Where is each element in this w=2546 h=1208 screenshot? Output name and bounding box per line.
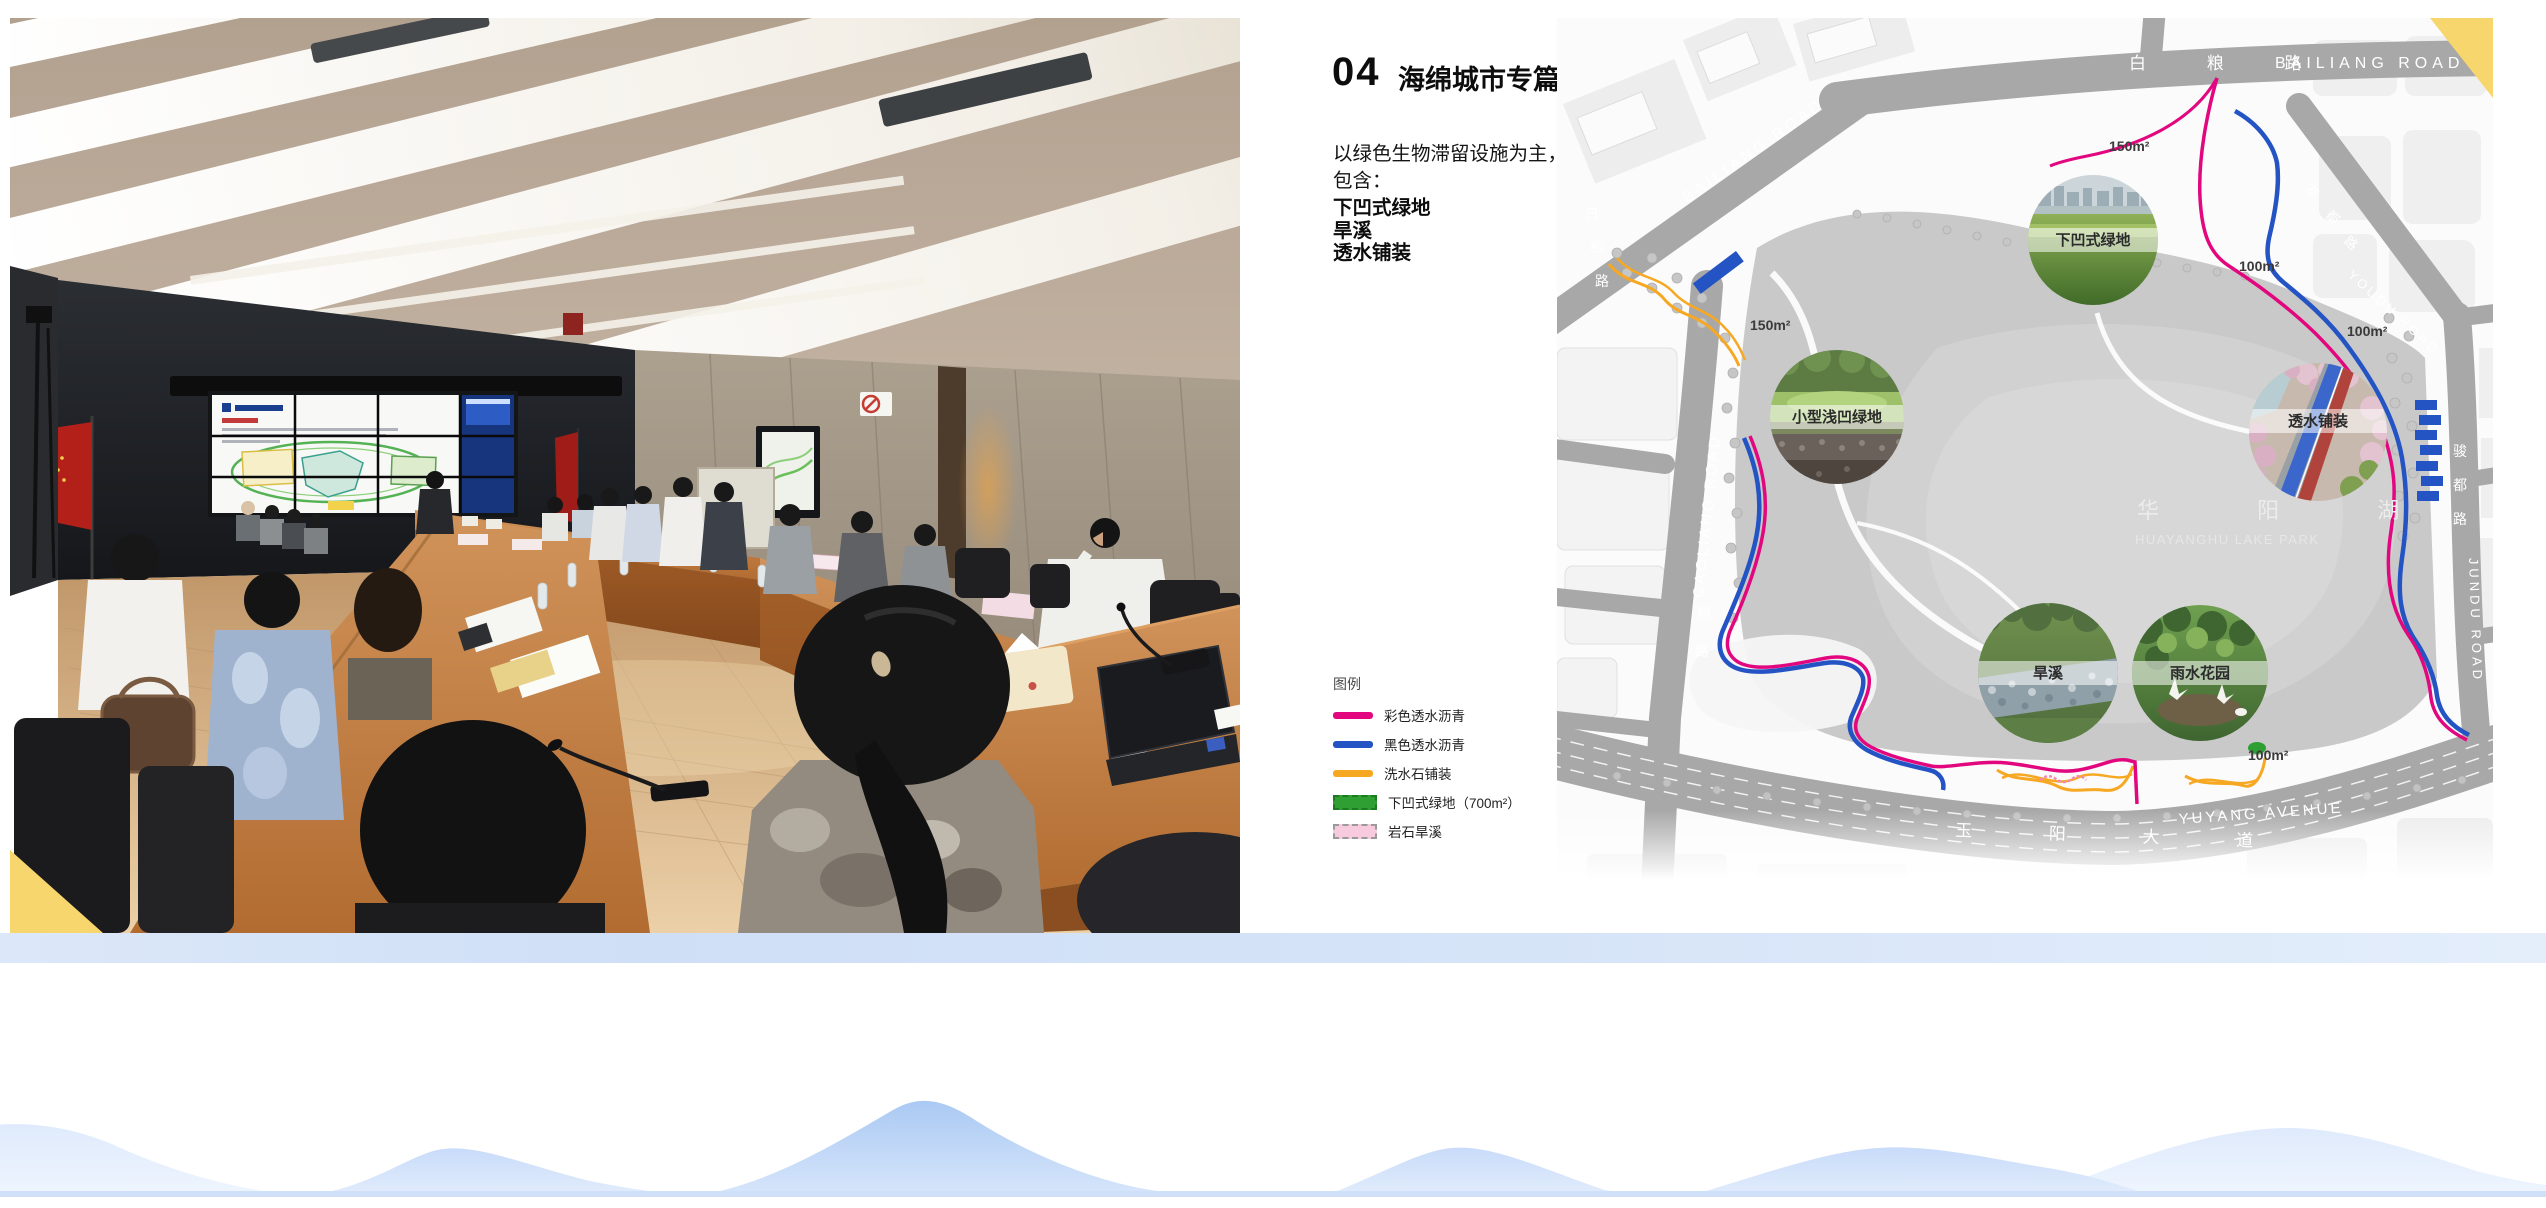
slide-page: 04 海绵城市专篇 以绿色生物滞留设施为主， 包含： 下凹式绿地 旱溪 透水铺装… (0, 0, 2546, 1208)
camera-tripod (26, 306, 52, 323)
svg-text:150m²: 150m² (1750, 317, 1791, 333)
feature-item: 透水铺装 (1333, 242, 1431, 265)
legend-row: 洗水石铺装 (1333, 763, 1521, 783)
svg-text:下凹式绿地: 下凹式绿地 (2055, 231, 2130, 249)
svg-text:都: 都 (2453, 477, 2467, 493)
feature-item: 旱溪 (1333, 220, 1431, 243)
site-plan-map: 下凹式绿地 小型浅凹绿地 (1557, 18, 2493, 880)
name-card (458, 534, 488, 545)
svg-text:透水铺装: 透水铺装 (2288, 412, 2349, 430)
svg-text:雨水花园: 雨水花园 (2170, 664, 2230, 682)
wall-sign (563, 313, 583, 335)
intro-line2: 包含： (1333, 168, 1573, 195)
legend-swatch-rock-creek (1333, 824, 1377, 839)
feature-list: 下凹式绿地 旱溪 透水铺装 (1333, 197, 1431, 265)
svg-text:100m²: 100m² (2248, 747, 2289, 763)
intro-line1: 以绿色生物滞留设施为主， (1333, 141, 1573, 168)
inset-sunken-green: 下凹式绿地 (2028, 175, 2158, 306)
svg-text:粮: 粮 (1697, 605, 1711, 621)
svg-text:路: 路 (1595, 273, 1609, 289)
section-number: 04 (1332, 50, 1381, 95)
svg-text:HUAYANGHU LAKE PARK: HUAYANGHU LAKE PARK (2135, 532, 2320, 547)
svg-text:路: 路 (1695, 643, 1709, 659)
legend-title: 图例 (1333, 674, 1521, 694)
legend-row: 岩石旱溪 (1333, 821, 1521, 841)
svg-text:150m²: 150m² (2109, 138, 2150, 154)
svg-text:骏: 骏 (2453, 443, 2467, 459)
wall-light-glow (958, 403, 1018, 573)
attendee-brown-hair (354, 568, 422, 652)
intro-text: 以绿色生物滞留设施为主， 包含： (1333, 141, 1573, 195)
video-wall (208, 391, 518, 517)
slide-logo (222, 403, 231, 412)
svg-text:粮: 粮 (1590, 239, 1604, 255)
legend-row: 黑色透水沥青 (1333, 734, 1521, 754)
svg-text:小型浅凹绿地: 小型浅凹绿地 (1792, 408, 1882, 426)
legend-swatch-sunken-green (1333, 795, 1377, 810)
conference-photo (10, 18, 1240, 933)
svg-text:华 阳 湖: 华 阳 湖 (2137, 498, 2445, 523)
svg-text:100m²: 100m² (2239, 258, 2280, 274)
svg-text:BAILIANG ROAD: BAILIANG ROAD (2275, 55, 2464, 72)
legend-swatch-black-asphalt (1333, 741, 1373, 748)
left-wall (10, 266, 58, 596)
video-wall-blue-screen (462, 395, 514, 513)
footer-accent-band (0, 933, 2546, 963)
legend-row: 下凹式绿地（700m²） (1333, 792, 1521, 812)
svg-text:白: 白 (1585, 205, 1599, 221)
svg-text:路: 路 (2453, 511, 2467, 527)
feature-item: 下凹式绿地 (1333, 197, 1431, 220)
no-smoking-sign (860, 392, 892, 416)
legend-swatch-washed-stone (1333, 770, 1373, 777)
name-card (512, 539, 542, 550)
svg-text:100m²: 100m² (2347, 323, 2388, 339)
section-title: 海绵城市专篇 (1398, 58, 1560, 97)
legend-swatch-colored-asphalt (1333, 712, 1373, 719)
svg-text:旱溪: 旱溪 (2033, 664, 2064, 682)
map-legend: 图例 彩色透水沥青 黑色透水沥青 洗水石铺装 下凹式绿地（700m²） 岩石旱溪 (1333, 674, 1521, 850)
legend-row: 彩色透水沥青 (1333, 705, 1521, 725)
footer-mountains (0, 1078, 2546, 1208)
